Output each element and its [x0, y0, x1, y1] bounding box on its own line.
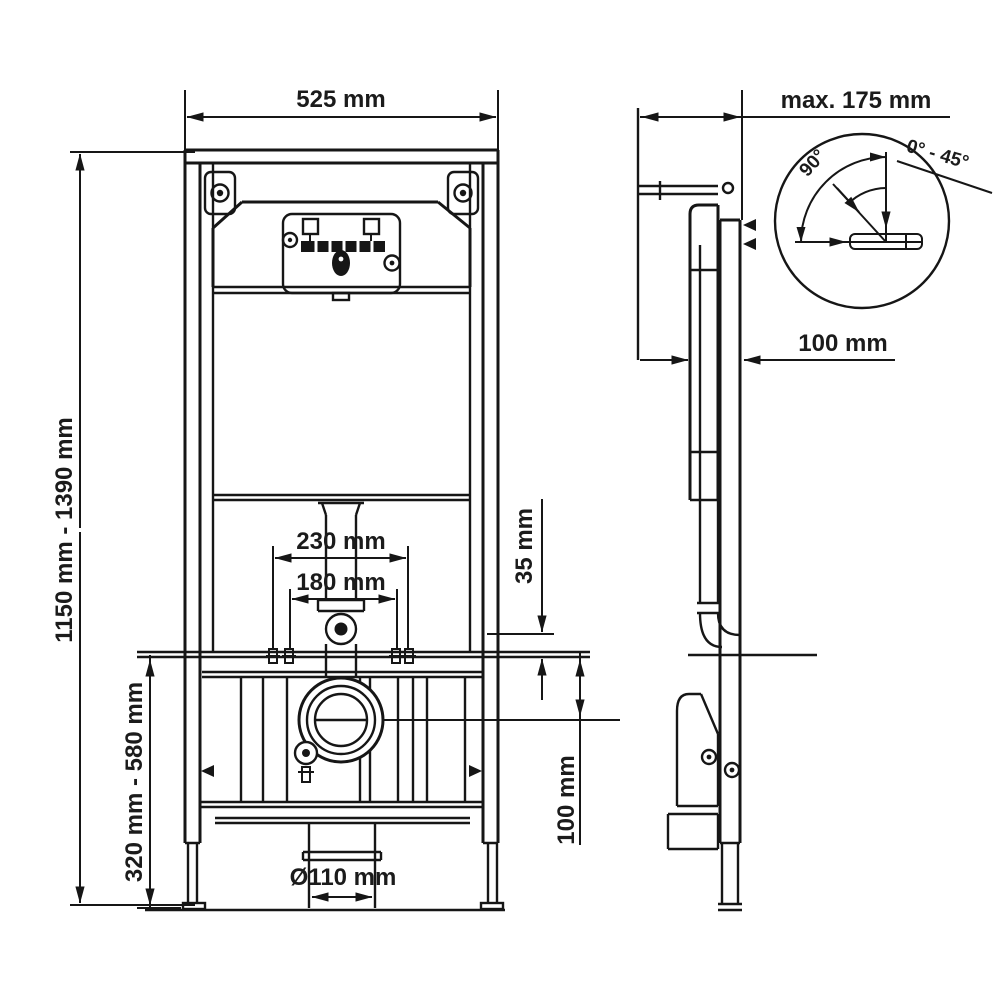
dim-front-width: 525 mm: [185, 86, 498, 150]
inlet-fitting: [295, 742, 317, 782]
wc-frame-technical-drawing: 525 mm 1150 mm - 1390 mm 230 mm 180 mm: [0, 0, 1000, 1000]
dim-label-fix-outer: 230 mm: [296, 528, 385, 555]
side-view: [638, 108, 817, 910]
dim-label-frame-height: 1150 mm - 1390 mm: [51, 417, 78, 642]
dim-label-rail-100: 100 mm: [553, 755, 580, 844]
right-arrow-icon: [469, 765, 482, 777]
dim-label-offset-35: 35 mm: [511, 508, 538, 584]
dim-label-profile-100: 100 mm: [798, 330, 887, 357]
technical-drawing-page: 525 mm 1150 mm - 1390 mm 230 mm 180 mm: [0, 0, 1000, 1000]
dim-depth-max: max. 175 mm: [640, 87, 950, 220]
corner-bracket-right: [448, 172, 478, 214]
dim-label-front-width: 525 mm: [296, 86, 385, 113]
cistern-side: [690, 205, 718, 500]
dim-rail-100: 100 mm: [553, 652, 580, 845]
base-section: [137, 652, 620, 823]
left-arrow-icon: [201, 765, 214, 777]
dim-label-depth-max: max. 175 mm: [781, 87, 932, 114]
dimensions: 525 mm 1150 mm - 1390 mm 230 mm 180 mm: [51, 86, 971, 908]
foot-side: [718, 843, 742, 910]
anchor-arrow-icon: [743, 238, 756, 250]
anchor-arrow-icon: [743, 219, 756, 231]
angle-arc-45: [848, 188, 886, 204]
wall-bracket: [638, 181, 733, 200]
drain-elbow-side: [668, 694, 739, 849]
dim-profile-100: 100 mm: [640, 330, 895, 360]
dim-drain-diameter: Ø110 mm: [290, 864, 397, 897]
dim-label-fix-inner: 180 mm: [296, 569, 385, 596]
frame-profile-side: [720, 220, 740, 843]
dim-label-drain-diameter: Ø110 mm: [290, 864, 397, 891]
angle-label-90: 90°: [795, 146, 830, 181]
angle-label-range: 0° - 45°: [904, 136, 971, 174]
corner-bracket-left: [205, 172, 235, 214]
dim-leg-range: 320 mm - 580 mm: [121, 655, 181, 908]
dim-label-leg-range: 320 mm - 580 mm: [121, 682, 148, 882]
